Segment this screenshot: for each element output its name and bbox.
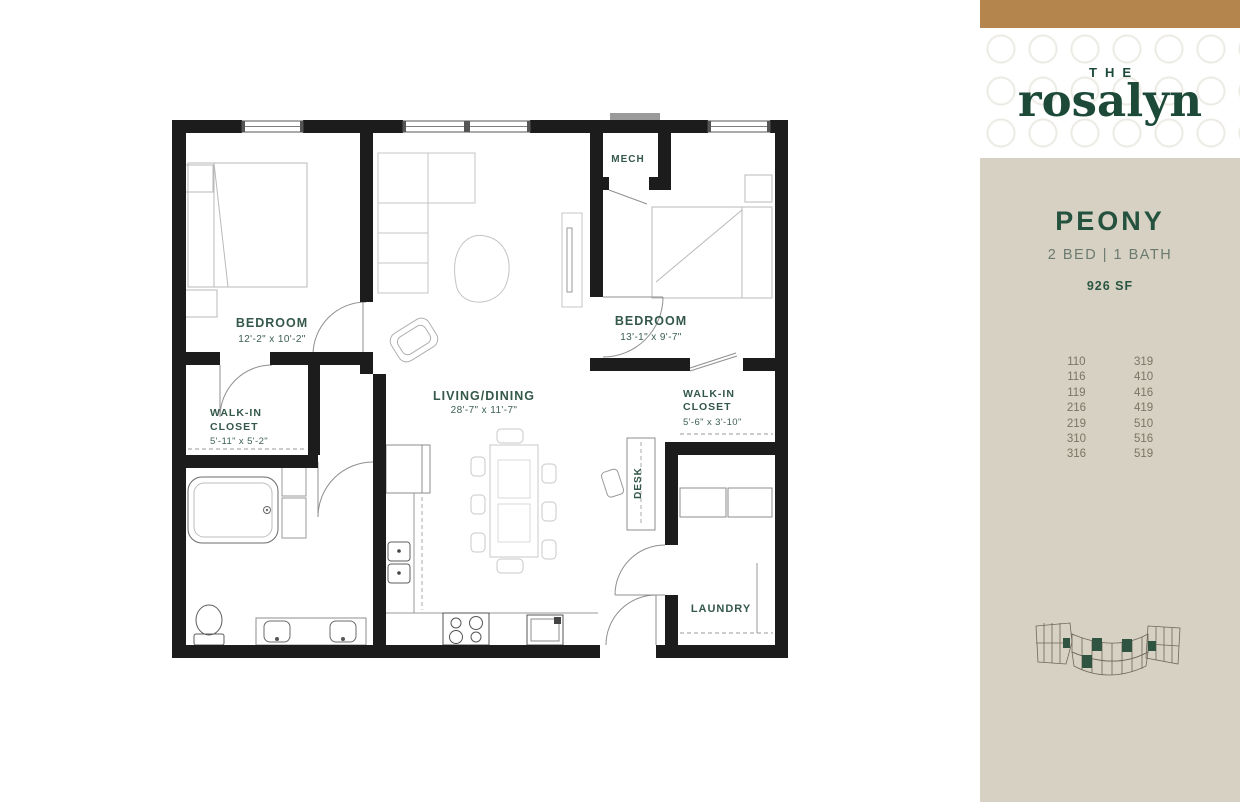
unit-number: 516 [1134,432,1153,447]
furniture-living [378,153,582,365]
unit-number: 316 [1067,447,1086,462]
dims-bedroom-2: 13'-1" x 9'-7" [620,332,682,343]
floor-plan-sheet: BEDROOM 12'-2" x 10'-2" LIVING/DINING 28… [0,0,1240,802]
unit-number: 410 [1134,370,1153,385]
unit-number: 519 [1134,447,1153,462]
unit-number: 319 [1134,355,1153,370]
unit-area: 926 SF [980,279,1240,293]
unit-specs: 2 BED | 1 BATH [980,247,1240,263]
label-closet-2-line1: WALK-IN [683,388,735,400]
label-bedroom-1: BEDROOM [236,316,308,330]
unit-number: 216 [1067,401,1086,416]
window-living [403,121,530,132]
logo-panel: THE rosalyn [980,28,1240,158]
furniture-kitchen [386,445,598,645]
info-sidebar: THE rosalyn PEONY 2 BED | 1 BATH 926 SF … [980,0,1240,802]
unit-name: PEONY [980,206,1240,237]
dims-closet-1: 5'-11" x 5'-2" [210,436,268,447]
door-swings [220,190,737,645]
room-labels: BEDROOM 12'-2" x 10'-2" LIVING/DINING 28… [210,154,751,615]
logo-wordmark: rosalyn [1018,81,1202,122]
accent-bar [980,0,1240,28]
furniture-dining [471,429,556,573]
furniture-bedroom-1 [185,163,307,317]
window-bedroom-1 [242,121,303,132]
furniture-bedroom-2 [652,175,772,298]
window-bedroom-2 [708,121,770,132]
label-closet-1-line1: WALK-IN [210,407,262,419]
unit-number: 310 [1067,432,1086,447]
dims-living-dining: 28'-7" x 11'-7" [451,405,518,416]
unit-numbers-column-2: 319 410 416 419 510 516 519 [1134,355,1153,463]
building-keyplan [1030,612,1186,686]
dims-closet-2: 5'-6" x 3'-10" [683,417,742,428]
label-living-dining: LIVING/DINING [433,389,535,403]
fixtures-bathroom [188,456,366,645]
unit-number: 510 [1134,417,1153,432]
dims-bedroom-1: 12'-2" x 10'-2" [238,334,306,345]
label-bedroom-2: BEDROOM [615,314,687,328]
unit-number: 116 [1067,370,1086,385]
floor-plan-drawing: BEDROOM 12'-2" x 10'-2" LIVING/DINING 28… [170,112,790,668]
label-laundry: LAUNDRY [691,603,751,615]
unit-number: 110 [1067,355,1086,370]
unit-numbers-column-1: 110 116 119 216 219 310 316 [1067,355,1086,463]
label-closet-2-line2: CLOSET [683,401,732,413]
unit-number: 416 [1134,386,1153,401]
unit-number: 419 [1134,401,1153,416]
label-desk: DESK [633,467,644,499]
label-closet-1-line2: CLOSET [210,421,259,433]
unit-number: 219 [1067,417,1086,432]
mech-louver [610,113,660,120]
available-unit-numbers: 110 116 119 216 219 310 316 319 410 416 … [980,355,1240,463]
unit-number: 119 [1067,386,1086,401]
label-mech: MECH [611,154,644,165]
